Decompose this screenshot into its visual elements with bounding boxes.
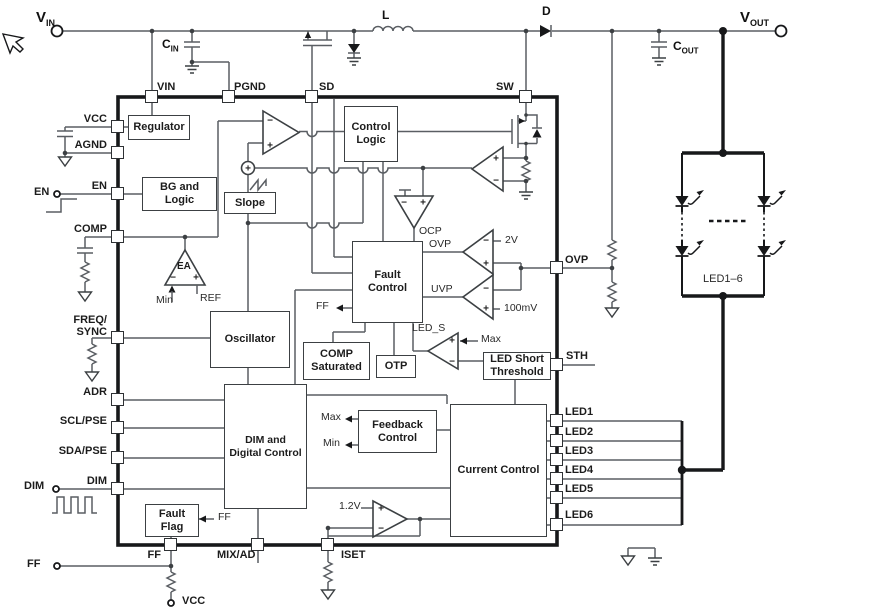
error-amp-label: EA [177,261,191,272]
pwm-plus: + [267,141,273,152]
ff-terminal-label: FF [27,558,40,570]
body-diode [533,129,542,138]
ovp-signal-label: OVP [429,239,451,251]
sense-minus: − [493,176,499,187]
pin-label-sda-pse: SDA/PSE [32,445,107,457]
pin-label-freq-sync: FREQ/ SYNC [32,314,107,338]
uvp-ref-label: 100mV [504,303,537,315]
high-current-path [682,31,764,470]
pwm-minus: − [267,116,273,127]
vcc-terminal-label: VCC [182,595,205,607]
pin-dim [111,482,124,495]
pin-led2 [550,434,563,447]
pin-label-sd: SD [319,81,334,93]
uvp-plus: + [483,304,489,315]
sense-plus: + [493,154,499,165]
pin-sda-pse [111,451,124,464]
pin-label-scl-pse: SCL/PSE [32,415,107,427]
pin-label-led3: LED3 [565,445,593,457]
pin-ovp [550,261,563,274]
led-s-plus: + [449,336,455,347]
clamp-diode [348,44,360,53]
pin-agnd [111,146,124,159]
pin-freq-sync [111,331,124,344]
block-led-short-threshold: LED Short Threshold [483,352,551,380]
block-current-control: Current Control [450,404,547,537]
pin-label-pgnd: PGND [234,81,266,93]
pin-led6 [550,518,563,531]
ocp-plus: + [420,198,426,209]
iset-amp-plus: + [378,504,384,515]
ocp-label: OCP [419,226,442,238]
cout-label: COUT [673,39,699,55]
block-fault-control: Fault Control [352,241,423,323]
led-string-label: LED1–6 [703,273,743,285]
pin-label-agnd: AGND [32,139,107,151]
pin-label-led1: LED1 [565,406,593,418]
inductor-label: L [382,8,389,22]
ea-minus: − [170,273,176,284]
pin-en [111,187,124,200]
ref-label: REF [200,293,221,305]
block-fault-flag: Fault Flag [145,504,199,537]
pin-led1 [550,414,563,427]
min-feedback-label: Min [323,438,340,450]
pin-ff [164,538,177,551]
pin-label-adr: ADR [32,386,107,398]
pin-scl-pse [111,421,124,434]
pin-led5 [550,491,563,504]
cin-label: CIN [162,37,179,53]
diode-label: D [542,4,551,18]
ovp-ref-label: 2V [505,235,518,247]
block-otp: OTP [376,355,416,378]
block-dim-digital-control: DIM and Digital Control [224,384,307,509]
ocp-minus: − [401,198,407,209]
ovp-plus: + [483,259,489,270]
pin-led3 [550,453,563,466]
iset-ref-label: 1.2V [339,501,361,513]
cursor-icon [3,34,23,53]
pin-label-comp: COMP [32,223,107,235]
min-ea-label: Min [156,295,173,307]
pin-sth [550,358,563,371]
pin-label-led6: LED6 [565,509,593,521]
pin-led4 [550,472,563,485]
block-oscillator: Oscillator [210,311,290,368]
block-control-logic: Control Logic [344,106,398,162]
block-feedback-control: Feedback Control [358,410,437,453]
led-driver-block-diagram: Regulator BG and Logic Slope Control Log… [0,0,877,612]
ea-plus: + [193,273,199,284]
led-symbols [676,196,771,256]
block-bg-logic: BG and Logic [142,177,217,211]
pin-comp [111,230,124,243]
iset-amp-minus: − [378,524,384,535]
pin-sw [519,90,532,103]
led-s-minus: − [449,357,455,368]
pin-label-led5: LED5 [565,483,593,495]
block-regulator: Regulator [128,115,190,140]
ff-flag-label: FF [218,512,231,524]
ff-fault-label: FF [316,301,329,313]
summing-plus: + [245,164,251,175]
pin-label-sw: SW [496,81,514,93]
pin-label-sth: STH [566,350,588,362]
pin-label-ovp: OVP [565,254,588,266]
pin-label-mix-ad: MIX/AD [217,549,256,561]
vin-terminal-label: VIN [36,9,55,28]
pin-sd [305,90,318,103]
uvp-signal-label: UVP [431,284,453,296]
pin-label-vcc: VCC [32,113,107,125]
pin-iset [321,538,334,551]
uvp-minus: − [483,284,489,295]
pin-adr [111,393,124,406]
en-terminal-label: EN [34,186,49,198]
pin-label-led4: LED4 [565,464,593,476]
vout-terminal-label: VOUT [740,9,769,28]
pin-vcc [111,120,124,133]
max-led-label: Max [481,334,501,346]
block-slope: Slope [224,192,276,214]
dim-terminal-label: DIM [24,480,44,492]
led-s-label: LED_S [412,323,445,335]
max-feedback-label: Max [321,412,341,424]
schematic-wiring [0,0,877,612]
rectifier-diode [540,25,551,37]
pin-label-vin: VIN [157,81,175,93]
pin-label-led2: LED2 [565,426,593,438]
pin-label-ff: FF [141,549,161,561]
block-comp-saturated: COMP Saturated [303,342,370,380]
pin-label-iset: ISET [341,549,365,561]
ovp-minus: − [483,236,489,247]
